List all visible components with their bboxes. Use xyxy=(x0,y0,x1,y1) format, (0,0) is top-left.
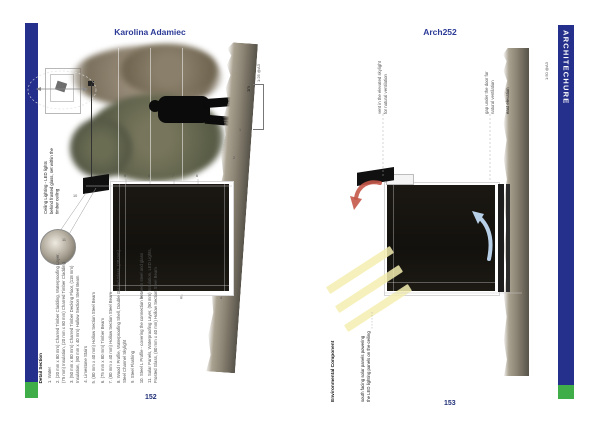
scale-bar-bracket xyxy=(253,84,264,130)
foundation-post xyxy=(498,184,504,292)
mullion-line xyxy=(150,48,151,182)
door-gap-annotation: gap under the door for natural ventilati… xyxy=(484,60,496,114)
foundation-post xyxy=(506,184,510,292)
leader-number: 1 xyxy=(239,128,241,132)
detail-note: Ceiling Lighting - LED lights behind fro… xyxy=(43,148,60,214)
section-marker-pole xyxy=(91,84,92,182)
mullion-line xyxy=(118,48,119,182)
person-silhouette-body xyxy=(158,96,210,123)
legend-item: 1. Water xyxy=(47,367,53,383)
portfolio-spread: ARCHITECHURE Karolina Adamiec Arch252 15… xyxy=(0,0,600,425)
legend-item: 2. (20 mm x 80 mm) Charred Timber Claddi… xyxy=(55,246,67,383)
left-edge-bar xyxy=(25,23,38,382)
legend-item: 11. Solar Panels, Waterproofing Layer, (… xyxy=(147,246,159,383)
legend-item: 6. (75 mm x 80 mm) Timber Beam xyxy=(100,318,106,383)
leader-number: 4 xyxy=(220,296,222,300)
scale-bar-label: 1m xyxy=(246,80,252,92)
leader-line xyxy=(60,193,86,231)
vent-annotation: vent in the elevated skylight for natura… xyxy=(377,60,389,114)
left-edge-bar-green xyxy=(25,382,38,398)
legend-title: Detail Section xyxy=(38,353,44,383)
sun-ray xyxy=(344,284,412,332)
left-page-number: 152 xyxy=(145,394,157,401)
leader-number: 8 xyxy=(148,174,150,178)
leader-number: 7 xyxy=(172,174,174,178)
leader-number: 10 xyxy=(73,194,77,198)
tree-bush xyxy=(70,118,132,178)
building-section-interior xyxy=(387,185,495,291)
leader-number: 6 xyxy=(196,174,198,178)
leader-number: 2 xyxy=(233,156,235,160)
architecture-side-tab: ARCHITECHURE xyxy=(558,30,574,140)
elevation-label: east elevation xyxy=(505,70,511,114)
legend-item: 5. (80 mm x 40 mm) Hollow Section Steel … xyxy=(91,292,97,383)
leader-number: 11 xyxy=(62,238,66,242)
right-edge-bar-green xyxy=(558,385,574,399)
legend-item: 3. (50 mm x 80 mm) Charred Timber Deckin… xyxy=(69,246,81,383)
leader-number: 9 xyxy=(124,174,126,178)
right-page-number: 153 xyxy=(444,400,456,407)
scale-ratio-left: 1:25 @A3 xyxy=(256,56,261,82)
leader-number: 5 xyxy=(180,296,182,300)
right-page-header: Arch252 xyxy=(380,27,500,37)
legend-item: 7. (80 mm x 40 mm) Hollow Section Steel … xyxy=(108,292,114,383)
section-title: Environmental Component xyxy=(331,320,337,402)
solar-panel-section xyxy=(83,174,109,194)
left-page-header: Karolina Adamiec xyxy=(90,27,210,37)
tree-canopy xyxy=(120,44,218,96)
legend-item: 9. Steel Flashing xyxy=(130,351,136,383)
scale-ratio-right: 1:50 @A3 xyxy=(544,52,549,80)
legend-item: 10. Steel L Profile - covering the conne… xyxy=(139,253,145,383)
door-frame-line xyxy=(224,184,225,291)
solar-annotation: south facing solar panels powering the L… xyxy=(360,330,372,402)
legend-item: 8. Wood I Profile, Waterproofing Shell, … xyxy=(116,246,128,383)
legend-item: 4. Limestone Stairs xyxy=(83,346,89,383)
detail-section-legend: Detail Section 1. Water 2. (20 mm x 80 m… xyxy=(38,246,159,383)
floor-line xyxy=(387,282,495,283)
heat-exhaust-arrowhead xyxy=(350,196,362,210)
